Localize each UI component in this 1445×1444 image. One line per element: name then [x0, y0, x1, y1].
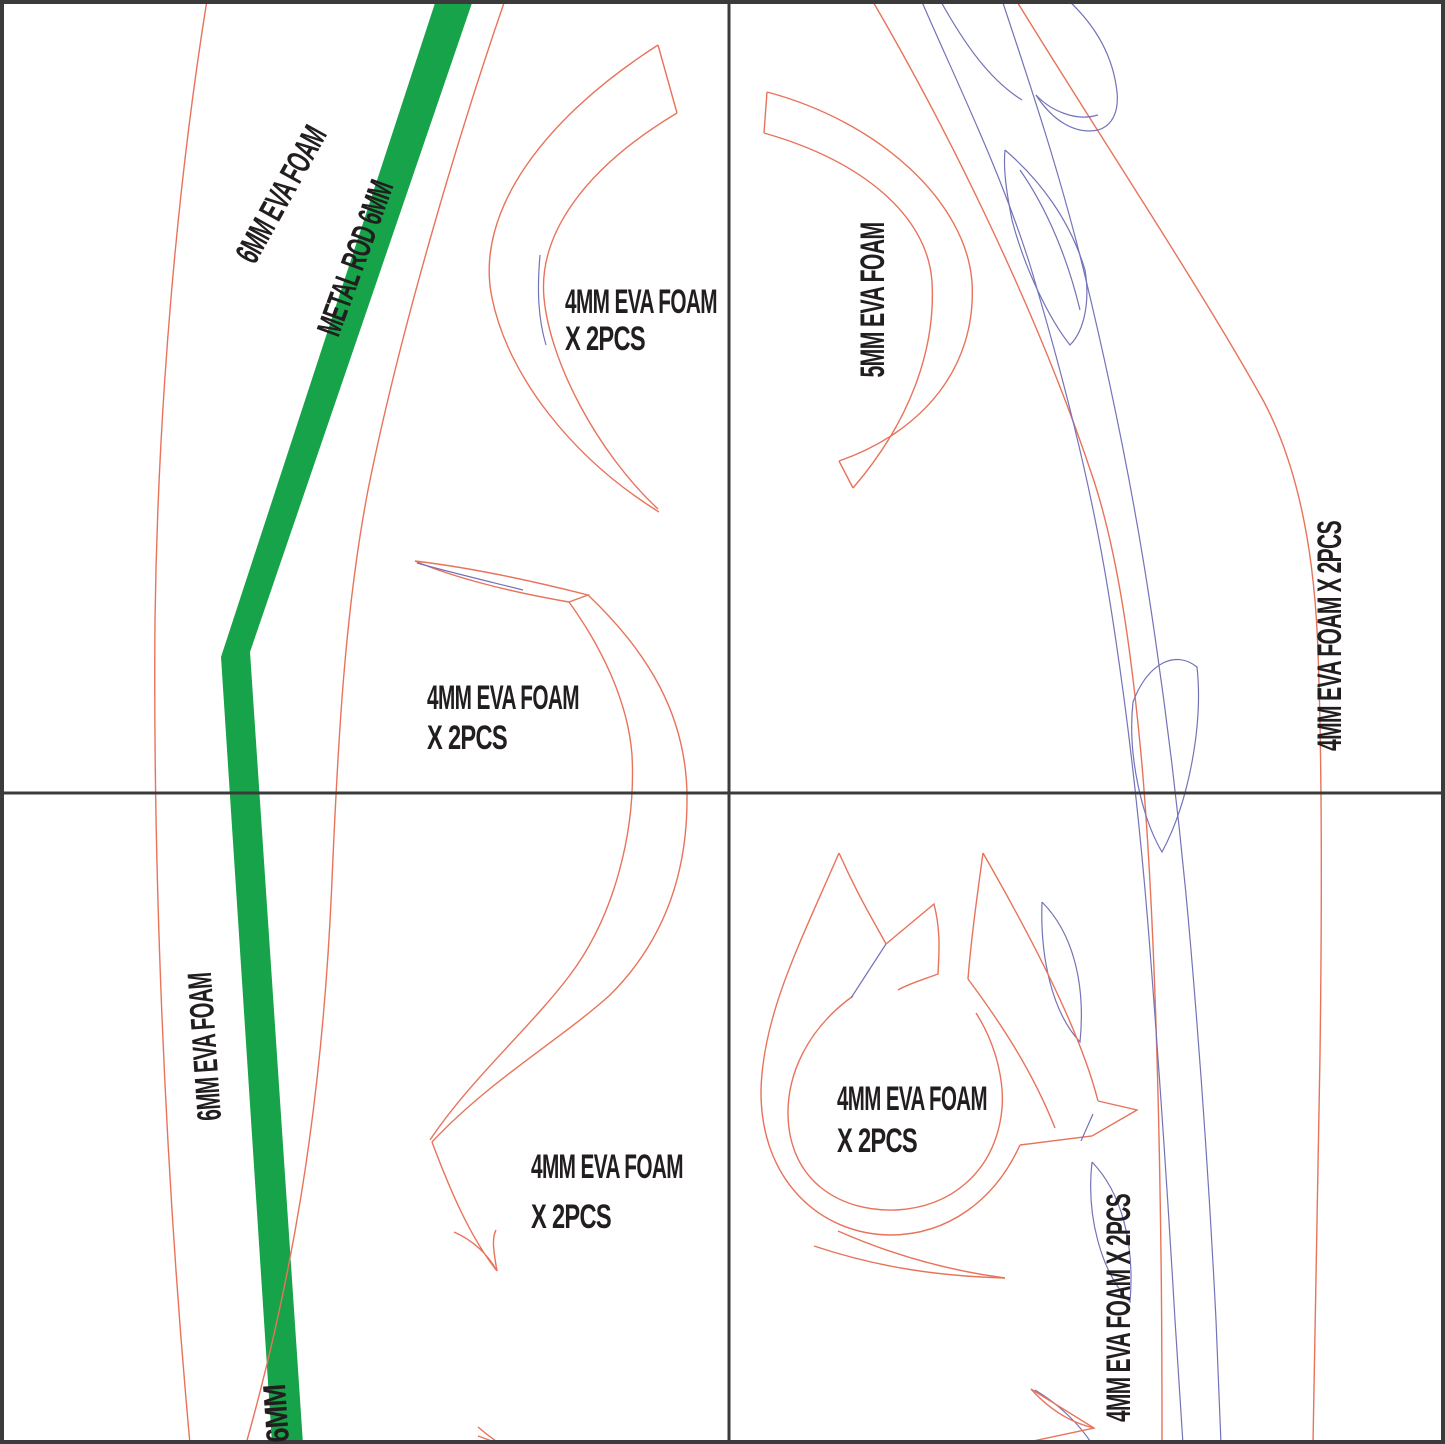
ring-piece — [761, 853, 1137, 1235]
label-ring-line1: 4MM EVA FOAM — [837, 1080, 987, 1118]
left-limb-outline-outer — [155, 0, 207, 1444]
label-crescent-line1: 4MM EVA FOAM — [565, 283, 717, 321]
sliver-pieces — [814, 1231, 1094, 1444]
label-tl-blade-line2: X 2PCS — [427, 719, 507, 757]
label-bl-blade-line2: X 2PCS — [531, 1198, 611, 1236]
pattern-sheet: 6MM EVA FOAM METAL ROD 6MM 4MM EVA FOAM … — [0, 0, 1445, 1444]
label-6mm-eva-foam-bottom: 6MM EVA FOAM — [181, 972, 229, 1122]
page-border — [2, 2, 1443, 1442]
label-tr-blade-vertical: 4MM EVA FOAM X 2PCS — [1311, 521, 1349, 751]
label-crescent-line2: X 2PCS — [565, 320, 645, 358]
label-6mm-eva-foam-top: 6MM EVA FOAM — [228, 120, 334, 270]
label-tl-blade-line1: 4MM EVA FOAM — [427, 679, 579, 717]
label-ring-line2: X 2PCS — [837, 1122, 917, 1160]
ring-detail-line — [851, 944, 886, 998]
pattern-canvas: 6MM EVA FOAM METAL ROD 6MM 4MM EVA FOAM … — [0, 0, 1445, 1444]
label-5mm-eva-foam: 5MM EVA FOAM — [854, 223, 892, 378]
right-limb-outline — [872, 0, 1321, 1444]
crescent-piece — [489, 45, 677, 512]
label-rod-width-6mm: 6MM — [256, 1384, 296, 1444]
label-br-blade-vertical: 4MM EVA FOAM X 2PCS — [1100, 1194, 1138, 1422]
label-bl-blade-line1: 4MM EVA FOAM — [531, 1148, 683, 1186]
vine-detail — [922, 0, 1221, 1444]
